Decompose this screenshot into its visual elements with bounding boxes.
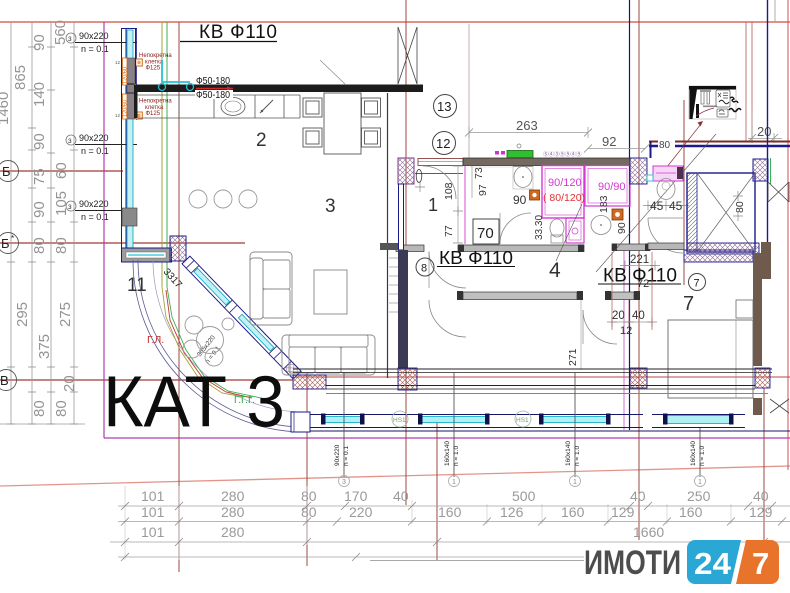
svg-text:n = 0.1: n = 0.1 [81, 212, 109, 222]
svg-text:1460: 1460 [0, 92, 12, 125]
svg-text:129: 129 [611, 504, 635, 520]
svg-text:90x220: 90x220 [334, 444, 341, 466]
svg-text:7: 7 [752, 546, 769, 581]
svg-text:3: 3 [68, 138, 72, 145]
svg-text:20: 20 [757, 124, 771, 139]
svg-text:80: 80 [31, 237, 48, 254]
svg-text:3: 3 [342, 479, 346, 486]
svg-text:72: 72 [637, 278, 649, 290]
svg-text:1: 1 [573, 479, 577, 486]
svg-text:160: 160 [679, 504, 703, 520]
svg-text:92: 92 [602, 134, 616, 149]
svg-text:90/120: 90/120 [548, 177, 582, 189]
svg-text:( 80/120): ( 80/120) [543, 192, 585, 204]
svg-text:90: 90 [31, 34, 48, 51]
svg-text:90: 90 [513, 193, 527, 207]
svg-text:Ф50-180: Ф50-180 [196, 76, 230, 87]
svg-text:129: 129 [749, 504, 773, 520]
svg-text:126: 126 [500, 504, 524, 520]
svg-text:3: 3 [68, 204, 72, 211]
svg-text:73: 73 [473, 167, 485, 179]
svg-text:90: 90 [616, 222, 628, 234]
svg-text:60: 60 [53, 162, 70, 179]
svg-text:12: 12 [115, 60, 121, 65]
svg-text:33.30: 33.30 [534, 215, 545, 240]
svg-text:HS1: HS1 [516, 417, 529, 424]
svg-text:500: 500 [512, 488, 536, 504]
svg-text:n = 1.0: n = 1.0 [574, 446, 581, 466]
svg-text:160: 160 [561, 504, 585, 520]
svg-text:280: 280 [221, 488, 245, 504]
svg-text:375: 375 [36, 334, 53, 359]
svg-text:560: 560 [52, 20, 69, 45]
svg-text:40: 40 [630, 488, 646, 504]
svg-text:40: 40 [753, 488, 769, 504]
svg-text:1660: 1660 [633, 524, 664, 540]
svg-text:n = 0.1: n = 0.1 [81, 44, 109, 54]
svg-text:120/60: 120/60 [123, 67, 129, 84]
svg-text:1: 1 [428, 195, 438, 215]
svg-text:2: 2 [256, 130, 267, 151]
svg-text:90x220: 90x220 [79, 133, 109, 143]
svg-text:20: 20 [61, 375, 78, 392]
svg-text:HS1: HS1 [393, 417, 406, 424]
svg-text:97: 97 [477, 184, 489, 196]
svg-text:Б: Б [2, 164, 11, 179]
svg-text:40: 40 [632, 310, 645, 322]
svg-text:101: 101 [141, 504, 165, 520]
svg-text:101: 101 [141, 488, 165, 504]
svg-text:80: 80 [53, 400, 70, 417]
svg-text:4: 4 [549, 259, 561, 282]
svg-text:75: 75 [31, 168, 48, 185]
svg-text:Непокретна: Непокретна [139, 53, 172, 59]
svg-text:*: * [11, 234, 14, 243]
svg-text:80: 80 [301, 488, 317, 504]
svg-text:Б: Б [1, 236, 10, 251]
svg-text:280: 280 [221, 504, 245, 520]
svg-text:КАТ 3: КАТ 3 [103, 363, 285, 443]
svg-text:ИМОТИ: ИМОТИ [584, 544, 681, 582]
svg-text:183: 183 [598, 195, 610, 213]
svg-text:77: 77 [443, 225, 455, 237]
svg-text:108: 108 [443, 182, 455, 200]
svg-text:КВ Ф110: КВ Ф110 [439, 247, 513, 268]
svg-text:70: 70 [477, 225, 494, 242]
svg-text:90x220: 90x220 [79, 199, 109, 209]
svg-text:220: 220 [349, 504, 373, 520]
svg-text:90x220: 90x220 [79, 31, 109, 41]
svg-text:865: 865 [12, 65, 29, 90]
svg-text:12: 12 [115, 113, 121, 118]
svg-text:3: 3 [68, 36, 72, 43]
svg-text:275: 275 [57, 302, 74, 327]
svg-text:280: 280 [221, 524, 245, 540]
svg-text:8: 8 [421, 263, 427, 275]
svg-text:Ф125: Ф125 [146, 66, 161, 72]
svg-text:45: 45 [669, 199, 683, 213]
svg-text:90: 90 [31, 201, 48, 218]
svg-text:80: 80 [659, 140, 671, 151]
svg-text:40: 40 [393, 488, 409, 504]
svg-text:В: В [0, 373, 9, 388]
svg-text:295: 295 [14, 302, 31, 327]
svg-text:1: 1 [452, 479, 456, 486]
svg-text:13: 13 [437, 99, 451, 114]
svg-text:n = 1.0: n = 1.0 [699, 446, 706, 466]
svg-text:20: 20 [612, 310, 625, 322]
svg-text:Ⓢ④③⑨⑨④⑨: Ⓢ④③⑨⑨④⑨ [543, 150, 582, 158]
svg-text:1: 1 [698, 479, 702, 486]
svg-text:n = 0.1: n = 0.1 [343, 446, 350, 466]
svg-text:12: 12 [620, 325, 632, 337]
svg-text:170: 170 [344, 488, 368, 504]
svg-text:Ф50-180: Ф50-180 [196, 90, 230, 101]
svg-text:263: 263 [516, 118, 538, 133]
svg-text:160x140: 160x140 [565, 441, 572, 466]
svg-text:12: 12 [436, 136, 450, 151]
svg-text:24: 24 [694, 546, 732, 581]
svg-text:11: 11 [127, 275, 147, 296]
svg-text:90: 90 [31, 133, 48, 150]
svg-text:80: 80 [301, 504, 317, 520]
svg-text:n = 1.0: n = 1.0 [453, 446, 460, 466]
svg-text:101: 101 [141, 524, 165, 540]
svg-text:250: 250 [687, 488, 711, 504]
svg-text:160x140: 160x140 [444, 441, 451, 466]
svg-text:Г.Л.: Г.Л. [147, 334, 164, 346]
svg-text:80: 80 [734, 201, 746, 213]
svg-text:КВ Ф110: КВ Ф110 [199, 22, 277, 43]
svg-text:90/90: 90/90 [598, 181, 626, 193]
svg-text:160x140: 160x140 [690, 441, 697, 466]
svg-text:7: 7 [683, 293, 694, 315]
svg-text:120/60: 120/60 [123, 100, 129, 117]
svg-text:45: 45 [650, 199, 664, 213]
svg-text:7: 7 [694, 278, 700, 290]
svg-text:3: 3 [325, 196, 336, 217]
svg-text:n = 0.1: n = 0.1 [81, 146, 109, 156]
svg-text:140: 140 [31, 82, 48, 107]
svg-text:80: 80 [31, 400, 48, 417]
svg-text:Ф125: Ф125 [146, 111, 161, 117]
svg-text:Непокретна: Непокретна [139, 98, 172, 104]
svg-text:80: 80 [53, 237, 70, 254]
svg-text:160: 160 [438, 504, 462, 520]
svg-text:271: 271 [567, 348, 579, 366]
